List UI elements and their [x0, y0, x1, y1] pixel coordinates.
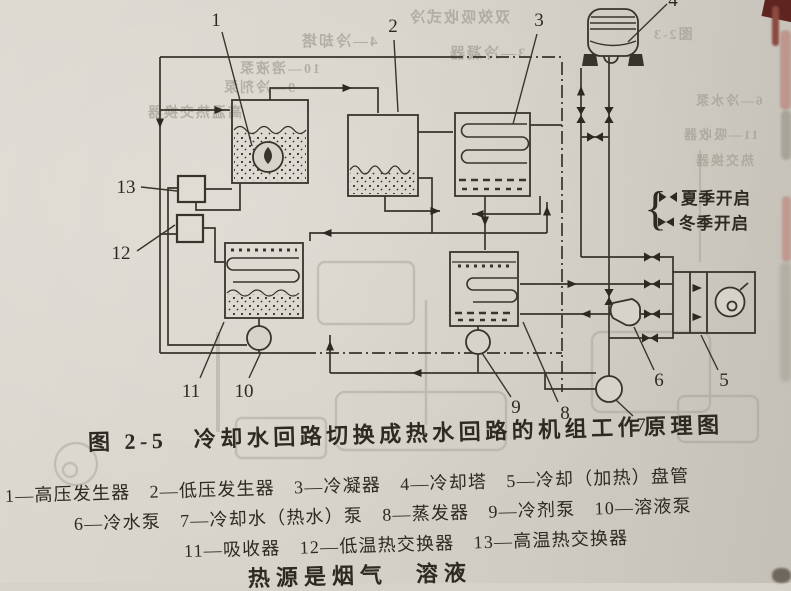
component-label-5: 5 [719, 370, 729, 391]
scanned-book-page: { "page": { "figure_caption": "图 2-5 冷却水… [0, 0, 791, 583]
edge-smudge [780, 262, 791, 382]
component-label-1: 1 [211, 10, 221, 31]
edge-smudge [782, 196, 791, 262]
valve-icon [576, 107, 585, 123]
bottom-partial-text: 热源是烟气 溶液 [248, 562, 473, 590]
component-label-11: 11 [182, 381, 200, 402]
absorber-box [225, 243, 303, 318]
winter-valve-label: 冬季开启 [679, 213, 749, 233]
chilled-water-pump-icon [611, 299, 641, 325]
fan-coil-box [673, 272, 755, 333]
refrigerant-pump-icon [466, 330, 490, 354]
lt-heat-exchanger-box [177, 215, 203, 242]
ht-heat-exchanger-box [178, 176, 205, 202]
edge-smudge [772, 6, 779, 46]
summer-valve-label: 夏季开启 [681, 188, 751, 208]
edge-smudge [781, 110, 791, 160]
schematic-diagram: 1 2 3 4 5 6 7 8 9 10 11 12 13 { 夏季开启 冬季开… [0, 0, 791, 440]
valve-season-legend: { 夏季开启 冬季开启 [644, 182, 751, 235]
condenser-box [455, 113, 530, 196]
component-label-2: 2 [388, 16, 398, 37]
cooling-water-pump-icon [596, 376, 622, 402]
component-label-12: 12 [112, 243, 131, 264]
valve-icon [604, 107, 613, 123]
cooling-tower [582, 9, 644, 66]
flow-arrows [156, 84, 702, 377]
lp-generator-box [348, 115, 418, 196]
component-label-6: 6 [654, 370, 664, 391]
component-label-13: 13 [117, 177, 136, 198]
component-label-3: 3 [534, 10, 544, 31]
component-label-9: 9 [511, 397, 521, 418]
component-label-4: 4 [668, 0, 678, 11]
valve-icon [644, 252, 660, 261]
legend-brace: { [644, 182, 667, 235]
piping [160, 57, 673, 392]
corner-stain [772, 568, 791, 583]
evaporator-box [450, 252, 518, 326]
solution-pump-icon [247, 326, 271, 350]
valve-icon [587, 132, 603, 141]
edge-smudge [780, 30, 791, 110]
component-label-10: 10 [235, 381, 254, 402]
valve-icon [644, 309, 660, 318]
valve-icon [644, 279, 660, 288]
valve-icon [642, 333, 658, 342]
